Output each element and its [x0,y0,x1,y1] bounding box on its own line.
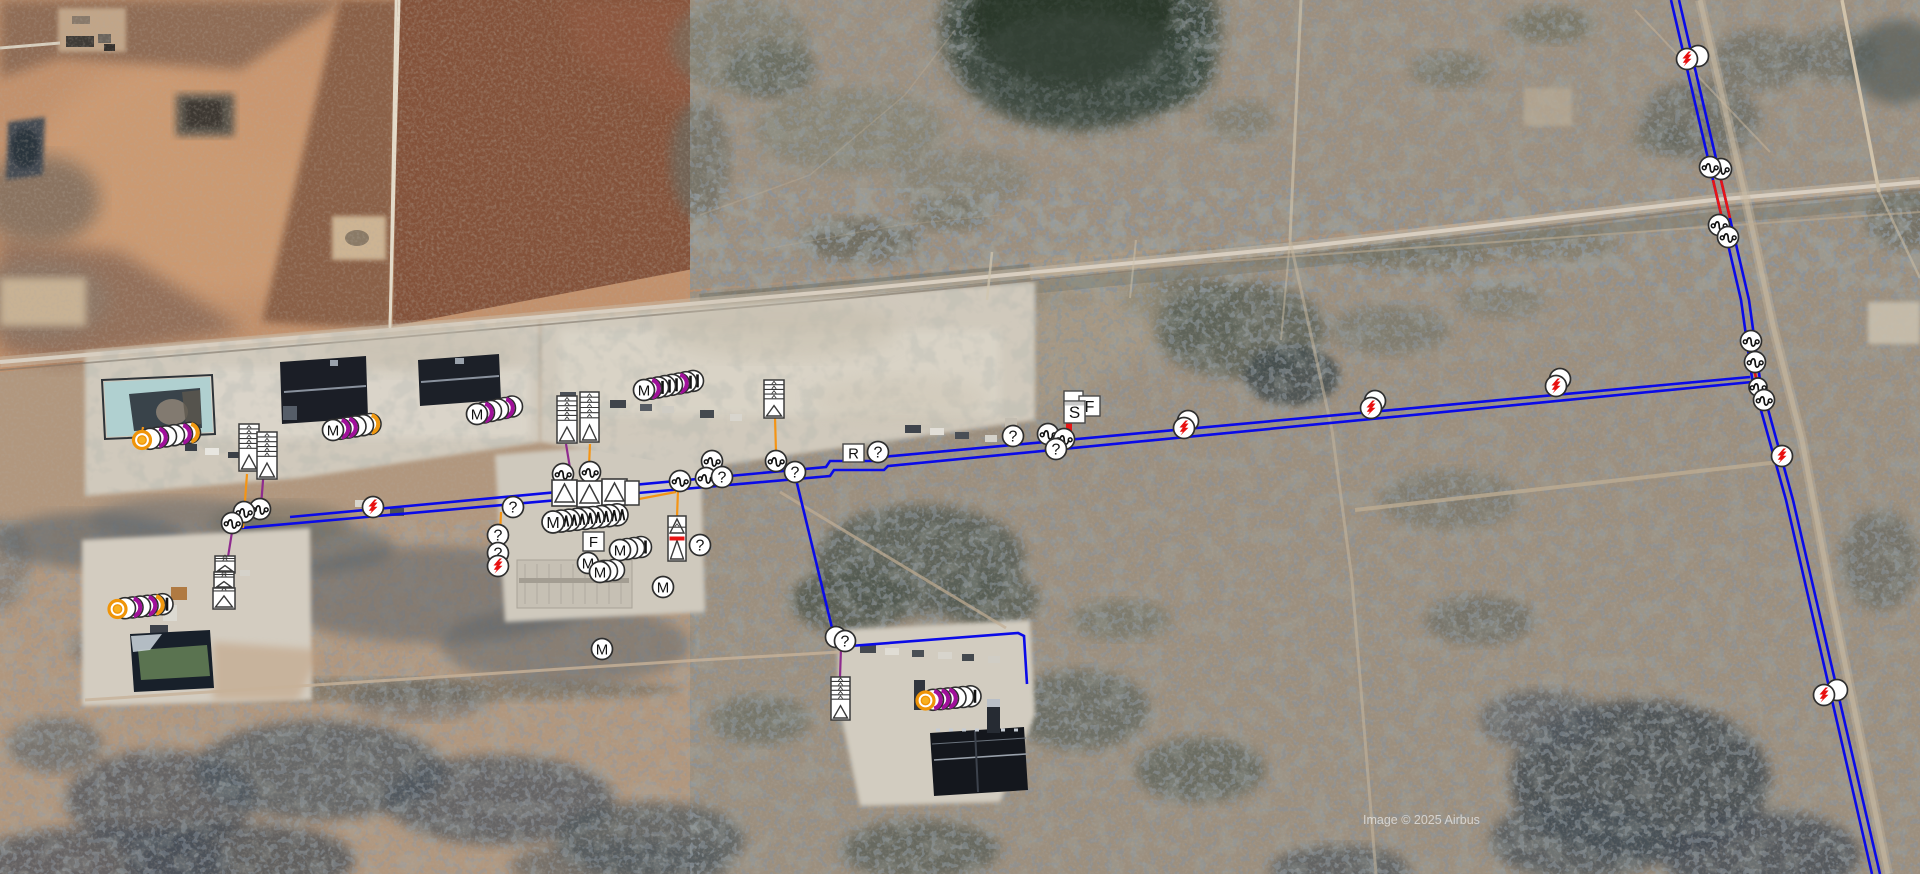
svg-text:?: ? [696,538,705,555]
svg-text:F: F [589,534,598,551]
svg-text:M: M [657,579,670,596]
svg-text:Image © 2025 Airbus: Image © 2025 Airbus [1363,813,1480,827]
svg-text:M: M [471,406,484,423]
svg-text:?: ? [1009,429,1018,446]
svg-text:?: ? [841,634,850,651]
svg-text:?: ? [509,500,518,517]
svg-text:M: M [546,515,559,532]
svg-text:?: ? [874,445,883,462]
svg-text:M: M [614,542,627,559]
svg-text:F: F [1085,399,1095,416]
svg-text:?: ? [718,470,727,487]
svg-text:R: R [848,445,859,462]
svg-text:M: M [327,422,340,439]
svg-text:?: ? [1052,442,1061,459]
svg-text:M: M [638,382,651,399]
svg-text:?: ? [791,465,800,482]
svg-text:M: M [596,641,609,658]
svg-text:S: S [1069,403,1080,422]
svg-text:M: M [594,564,607,581]
